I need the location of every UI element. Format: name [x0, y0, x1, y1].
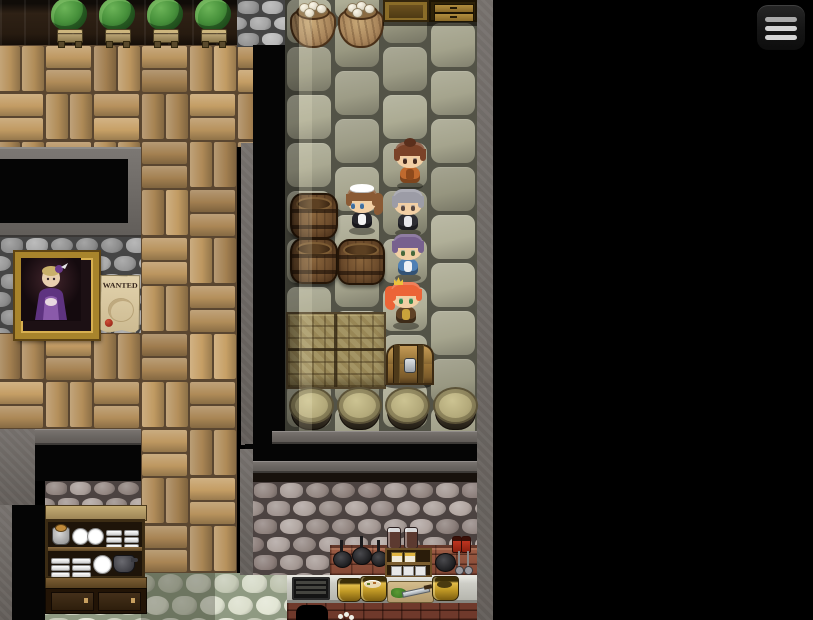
wall-opening: [35, 445, 141, 481]
hanging-pan: [352, 547, 372, 565]
flower-decoration: [338, 612, 354, 620]
gold-pot: [432, 576, 459, 601]
wall-strip: [240, 449, 253, 575]
sack-of-eggs: [336, 0, 382, 45]
wall-corner: [0, 429, 35, 505]
wall-opening: [12, 505, 45, 620]
treasure-chest[interactable]: [385, 344, 431, 388]
hair-bun: [404, 138, 416, 147]
stove-grate: [292, 577, 330, 600]
framed-portrait: [15, 252, 99, 339]
potted-plant: [49, 0, 89, 47]
potted-plant: [193, 0, 233, 47]
poster-sketch: [108, 298, 134, 322]
bush: [195, 0, 231, 31]
jar: [415, 566, 426, 576]
wooden-barrel: [290, 193, 338, 239]
bush: [147, 0, 183, 31]
glass-jar: [404, 527, 418, 549]
npc-villager-blue[interactable]: [391, 233, 425, 281]
npc-body: [352, 212, 372, 228]
npc-body: [400, 167, 420, 183]
oven-mouth: [296, 605, 328, 620]
npc-hair: [393, 189, 423, 203]
cutting-board: [387, 581, 434, 603]
plate: [93, 555, 112, 574]
wall-beam: [253, 473, 493, 482]
menu-button[interactable]: [757, 5, 805, 50]
covered-barrel: [336, 386, 381, 430]
spice-shelf: [385, 548, 432, 577]
pink-stone-wall: [45, 481, 141, 508]
red-bottle: [461, 536, 471, 553]
wooden-barrel: [290, 238, 338, 284]
wall-opening: [0, 159, 128, 223]
potted-plant: [145, 0, 185, 47]
glass-jar: [387, 527, 401, 549]
dark-passage: [253, 45, 285, 445]
sprite-shadow: [393, 322, 419, 330]
sprite-shadow: [349, 227, 375, 235]
jar: [391, 566, 402, 576]
hanging-ladle: [467, 551, 469, 567]
hanging-ladle: [458, 551, 460, 567]
counter-drawers: [429, 0, 477, 22]
hanging-pan: [333, 551, 352, 568]
npc-adventurer-red[interactable]: [389, 281, 423, 329]
jar: [403, 566, 414, 576]
chest-clasp: [404, 358, 416, 373]
brick-floor: [141, 147, 237, 573]
poster-wax-seal: [105, 319, 113, 327]
bush: [51, 0, 87, 31]
covered-barrel: [432, 386, 477, 430]
sack-of-eggs: [288, 0, 334, 45]
gold-pot: [337, 578, 362, 602]
npc-villager-orange[interactable]: [393, 141, 427, 189]
wall-ledge: [253, 461, 493, 473]
covered-barrel: [288, 386, 333, 430]
wall-ledge: [272, 431, 493, 444]
game-viewport[interactable]: WANTED: [0, 0, 813, 620]
plate-stack: [51, 557, 70, 578]
wall-strip: [0, 505, 12, 620]
brick-floor: [0, 45, 253, 147]
storage-crates: [286, 312, 386, 389]
npc-villager-gray[interactable]: [391, 188, 425, 236]
potted-plant: [97, 0, 137, 47]
maid-headband: [350, 184, 374, 192]
portrait-painting: [21, 258, 81, 321]
npc-body: [398, 214, 418, 230]
npc-hair: [393, 234, 423, 248]
wooden-counter: [383, 0, 477, 26]
bush: [99, 0, 135, 31]
right-wall: [477, 0, 493, 620]
npc-body: [398, 259, 418, 275]
brick-floor: [0, 333, 141, 429]
hanging-pan: [435, 553, 456, 572]
passage-frame: [241, 143, 253, 445]
npc-maid[interactable]: [345, 186, 379, 234]
wall-gap: [245, 444, 493, 461]
soup-pot: [360, 576, 387, 602]
covered-barrel: [384, 386, 429, 430]
wooden-barrel: [337, 239, 385, 285]
plate-stack: [72, 557, 91, 578]
gray-stone-column: [237, 0, 285, 47]
npc-body: [396, 307, 416, 323]
dish-cabinet: [45, 505, 145, 612]
plate: [87, 528, 104, 545]
wanted-poster: WANTED: [100, 275, 141, 333]
wanted-poster-title: WANTED: [101, 281, 139, 289]
